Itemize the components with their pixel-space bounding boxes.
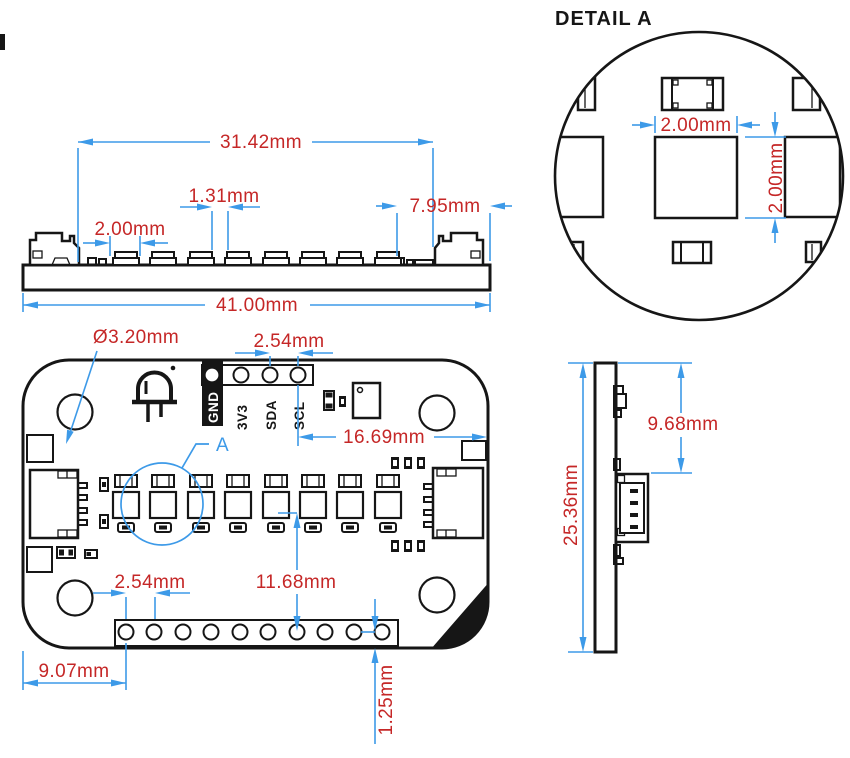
dim-label: 2.00mm <box>660 115 731 136</box>
edge-artifact-mark <box>0 34 5 50</box>
pcb-technical-drawing: 31.42mm 1.31mm 2.00mm 7.95mm 41.00mm <box>0 0 850 758</box>
led-body-square-right <box>785 137 840 217</box>
pad-group-right-bottom <box>391 540 425 552</box>
dim-label: 41.00mm <box>216 295 298 316</box>
dim-label: 2.54mm <box>114 572 185 593</box>
header-hole <box>119 625 134 640</box>
led-body-square <box>655 137 737 218</box>
edge-pad <box>27 435 53 462</box>
board-outline <box>23 360 488 648</box>
dim-label: 11.68mm <box>256 572 337 593</box>
dim-label: 7.95mm <box>409 196 480 217</box>
header-hole <box>318 625 333 640</box>
bottom-pad-component <box>673 242 711 263</box>
dimension-edge-to-hole: 9.07mm <box>23 643 126 690</box>
pin1-dot <box>358 388 363 393</box>
bottom-right-pad <box>806 242 821 262</box>
silkscreen-dot <box>171 366 176 371</box>
right-connector <box>424 468 483 538</box>
mounting-hole <box>420 396 455 431</box>
header-hole <box>204 625 219 640</box>
header-hole <box>375 625 390 640</box>
side-pad-mark <box>102 482 106 487</box>
header-hole <box>347 625 362 640</box>
edge-pad <box>27 547 52 572</box>
dimension-connector-offset: 9.68mm <box>618 363 719 473</box>
led-profile-row <box>113 252 401 265</box>
edge-pad-right <box>462 441 486 460</box>
pin-label-gnd: GND <box>206 392 221 424</box>
mounting-hole <box>420 578 455 613</box>
dimension-board-height: 25.36mm <box>561 363 593 652</box>
pcb-bar-vertical <box>595 363 616 652</box>
top-view: GND 3V3 SDA SCL <box>23 327 488 744</box>
dimension-41-00: 41.00mm <box>23 293 490 316</box>
ic-chip <box>353 383 380 418</box>
mounting-hole <box>58 395 93 430</box>
pad-profile <box>415 260 433 265</box>
detail-a-view: DETAIL A <box>548 8 843 320</box>
dim-label: 1.25mm <box>376 664 397 735</box>
right-profile-view: 25.36mm 9.68mm <box>561 363 719 652</box>
mounting-hole <box>58 581 93 616</box>
bottom-pin-header <box>115 620 398 646</box>
dimension-detail-width: 2.00mm <box>632 115 760 136</box>
header-hole <box>263 368 278 383</box>
header-hole <box>261 625 276 640</box>
detail-marker-label: A <box>216 435 229 456</box>
dim-label: 31.42mm <box>220 132 302 153</box>
dim-label: 9.07mm <box>38 661 109 682</box>
pcb-bar <box>23 265 490 290</box>
header-hole <box>233 625 248 640</box>
dim-label: 25.36mm <box>561 464 582 546</box>
pad-profile <box>407 260 413 265</box>
drawing-canvas: 31.42mm 1.31mm 2.00mm 7.95mm 41.00mm <box>0 0 850 758</box>
dim-label: 2.00mm <box>766 142 787 213</box>
detail-a-contents <box>548 78 840 263</box>
pin-label-sda: SDA <box>264 400 279 430</box>
dimension-2-00: 2.00mm <box>83 219 168 256</box>
dim-label: 9.68mm <box>647 414 718 435</box>
side-pad-mark <box>102 519 106 524</box>
header-hole <box>205 368 220 383</box>
top-pad-component <box>662 78 723 110</box>
dimension-1-31: 1.31mm <box>180 186 260 250</box>
header-hole <box>291 368 306 383</box>
detail-a-title: DETAIL A <box>555 8 653 30</box>
right-connector-profile <box>435 233 483 265</box>
pin-label-scl: SCL <box>292 402 307 431</box>
header-hole <box>176 625 191 640</box>
header-hole <box>147 625 162 640</box>
pin-label-3v3: 3V3 <box>235 404 250 430</box>
pad-profile <box>99 259 106 265</box>
dim-label: 2.00mm <box>94 219 165 240</box>
dim-label: 2.54mm <box>253 331 324 352</box>
side-profile-view: 31.42mm 1.31mm 2.00mm 7.95mm 41.00mm <box>23 132 512 316</box>
pad-group-right-top <box>391 457 425 469</box>
dim-label: Ø3.20mm <box>93 327 179 348</box>
side-connector <box>616 474 648 542</box>
header-hole <box>234 368 249 383</box>
dim-label: 1.31mm <box>188 186 259 207</box>
left-connector <box>30 470 87 538</box>
dimension-detail-height: 2.00mm <box>745 112 787 243</box>
dim-label: 16.69mm <box>343 427 425 448</box>
